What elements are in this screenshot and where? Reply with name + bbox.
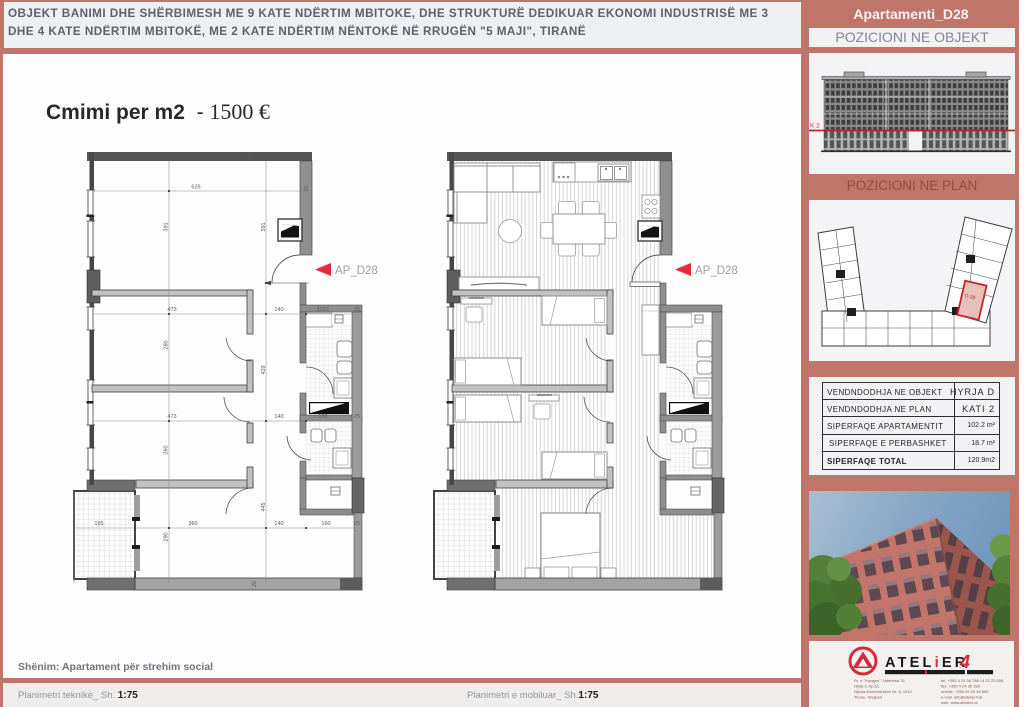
svg-text:4: 4: [959, 652, 970, 672]
svg-text:20: 20: [252, 581, 258, 587]
svg-text:25: 25: [304, 185, 310, 191]
svg-text:mobile. +355 69 20 46 855: mobile. +355 69 20 46 855: [941, 689, 989, 694]
svg-text:625: 625: [191, 185, 200, 191]
svg-text:429: 429: [261, 365, 267, 374]
svg-text:160: 160: [321, 521, 330, 527]
svg-text:25: 25: [354, 414, 360, 420]
svg-text:web. www.atelier4.al: web. www.atelier4.al: [941, 700, 978, 705]
svg-text:290: 290: [164, 532, 170, 541]
svg-text:391: 391: [164, 222, 170, 231]
svg-text:Njesia Administrative Nr. 6, 1: Njesia Administrative Nr. 6, 1010: [854, 689, 913, 694]
svg-text:140: 140: [274, 521, 283, 527]
svg-text:140: 140: [274, 307, 283, 313]
svg-text:445: 445: [261, 502, 267, 511]
svg-text:473: 473: [167, 414, 176, 420]
svg-text:473: 473: [167, 307, 176, 313]
svg-text:AP_D28: AP_D28: [335, 265, 378, 277]
svg-text:K 2: K 2: [810, 123, 820, 130]
svg-text:Hyrja 9, Ap.61: Hyrja 9, Ap.61: [854, 684, 880, 689]
svg-text:391: 391: [261, 222, 267, 231]
svg-text:Rr. e "Kavajes", Ndertesa 76: Rr. e "Kavajes", Ndertesa 76: [854, 678, 905, 683]
svg-text:25: 25: [354, 307, 360, 313]
svg-text:ATELiER: ATELiER: [885, 655, 968, 671]
svg-text:153: 153: [318, 414, 327, 420]
svg-text:140: 140: [274, 414, 283, 420]
svg-text:Tirane, Shqiperi: Tirane, Shqiperi: [854, 695, 882, 700]
svg-text:fax. +355 4 24 30 185: fax. +355 4 24 30 185: [941, 684, 981, 689]
svg-text:e-mail. info@atelier4.al: e-mail. info@atelier4.al: [941, 695, 982, 700]
svg-text:1153: 1153: [317, 307, 329, 313]
svg-text:280: 280: [164, 340, 170, 349]
svg-text:360: 360: [188, 521, 197, 527]
svg-text:25: 25: [354, 521, 360, 527]
svg-text:165: 165: [94, 521, 103, 527]
svg-text:260: 260: [164, 445, 170, 454]
svg-text:tel. +355 4 24 56 788 / 4 22 2: tel. +355 4 24 56 788 / 4 22 23 655: [941, 678, 1004, 683]
svg-text:AP_D28: AP_D28: [695, 265, 738, 277]
svg-text:25: 25: [248, 153, 254, 159]
